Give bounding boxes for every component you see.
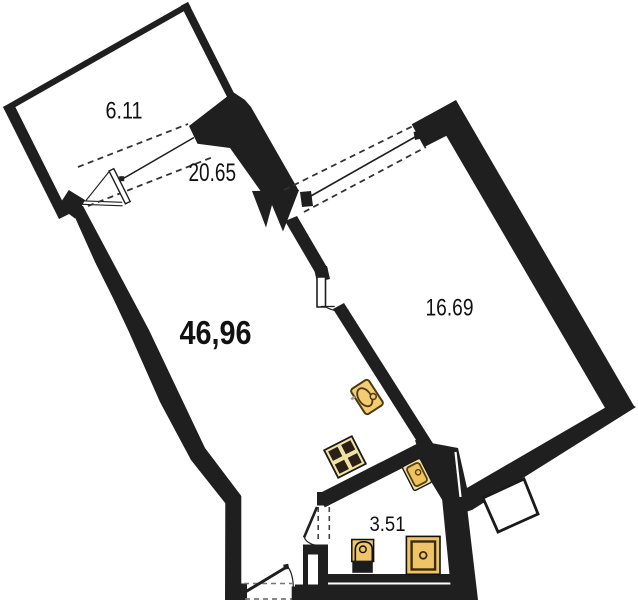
svg-text:46,96: 46,96 [180,314,252,351]
svg-text:20.65: 20.65 [189,159,237,187]
svg-text:3.51: 3.51 [370,513,406,536]
svg-text:16.69: 16.69 [426,295,474,322]
svg-text:6.11: 6.11 [106,98,143,125]
